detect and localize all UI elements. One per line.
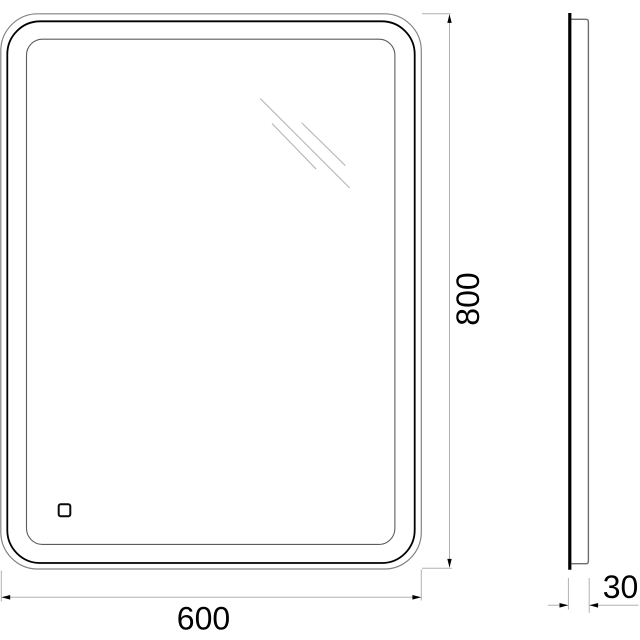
- svg-text:30: 30: [603, 569, 639, 605]
- svg-text:800: 800: [450, 272, 486, 325]
- svg-text:600: 600: [177, 601, 230, 637]
